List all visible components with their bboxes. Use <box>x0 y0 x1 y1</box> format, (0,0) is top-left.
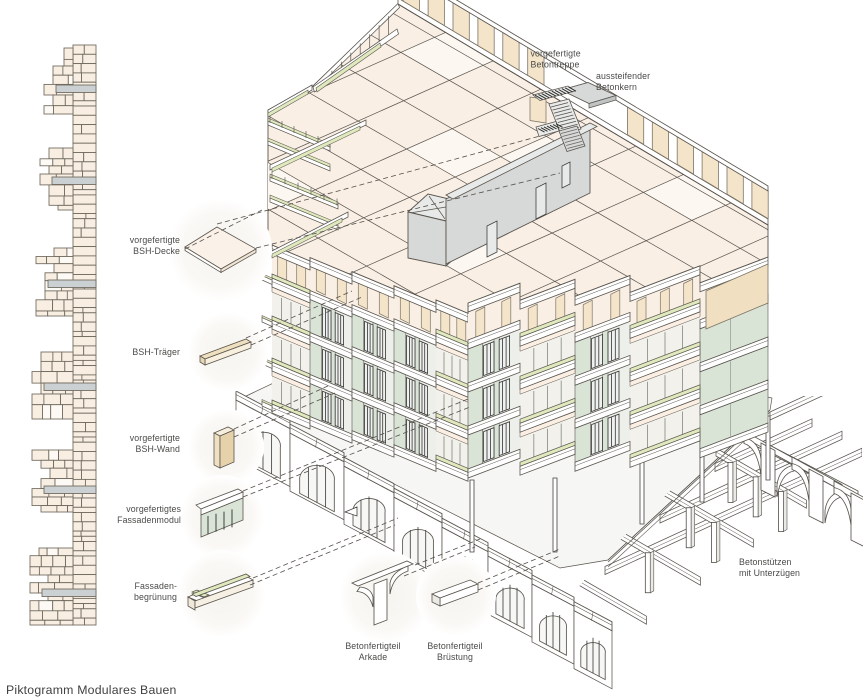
svg-text:Fassadenmodul: Fassadenmodul <box>117 515 181 525</box>
svg-text:Brüstung: Brüstung <box>437 652 473 662</box>
svg-text:Piktogramm Modulares Bauen: Piktogramm Modulares Bauen <box>6 683 177 697</box>
svg-text:BSH-Träger: BSH-Träger <box>132 347 180 357</box>
svg-text:vorgefertigte: vorgefertigte <box>130 235 180 245</box>
svg-text:Betontreppe: Betontreppe <box>531 59 580 69</box>
svg-text:begrünung: begrünung <box>134 592 177 602</box>
svg-text:vorgefertigte: vorgefertigte <box>130 433 180 443</box>
svg-text:vorgefertigte: vorgefertigte <box>531 49 581 59</box>
svg-text:Fassaden-: Fassaden- <box>135 581 177 591</box>
svg-text:BSH-Wand: BSH-Wand <box>136 444 180 454</box>
svg-text:Betonfertigteil: Betonfertigteil <box>345 641 400 651</box>
svg-text:vorgefertigtes: vorgefertigtes <box>126 504 181 514</box>
svg-text:Betonkern: Betonkern <box>596 82 637 92</box>
svg-text:mit Unterzügen: mit Unterzügen <box>739 568 800 578</box>
svg-text:Arkade: Arkade <box>359 652 387 662</box>
svg-text:BSH-Decke: BSH-Decke <box>133 246 180 256</box>
svg-text:Betonstützen: Betonstützen <box>739 557 792 567</box>
svg-text:Betonfertigteil: Betonfertigteil <box>427 641 482 651</box>
svg-text:aussteifender: aussteifender <box>596 71 650 81</box>
